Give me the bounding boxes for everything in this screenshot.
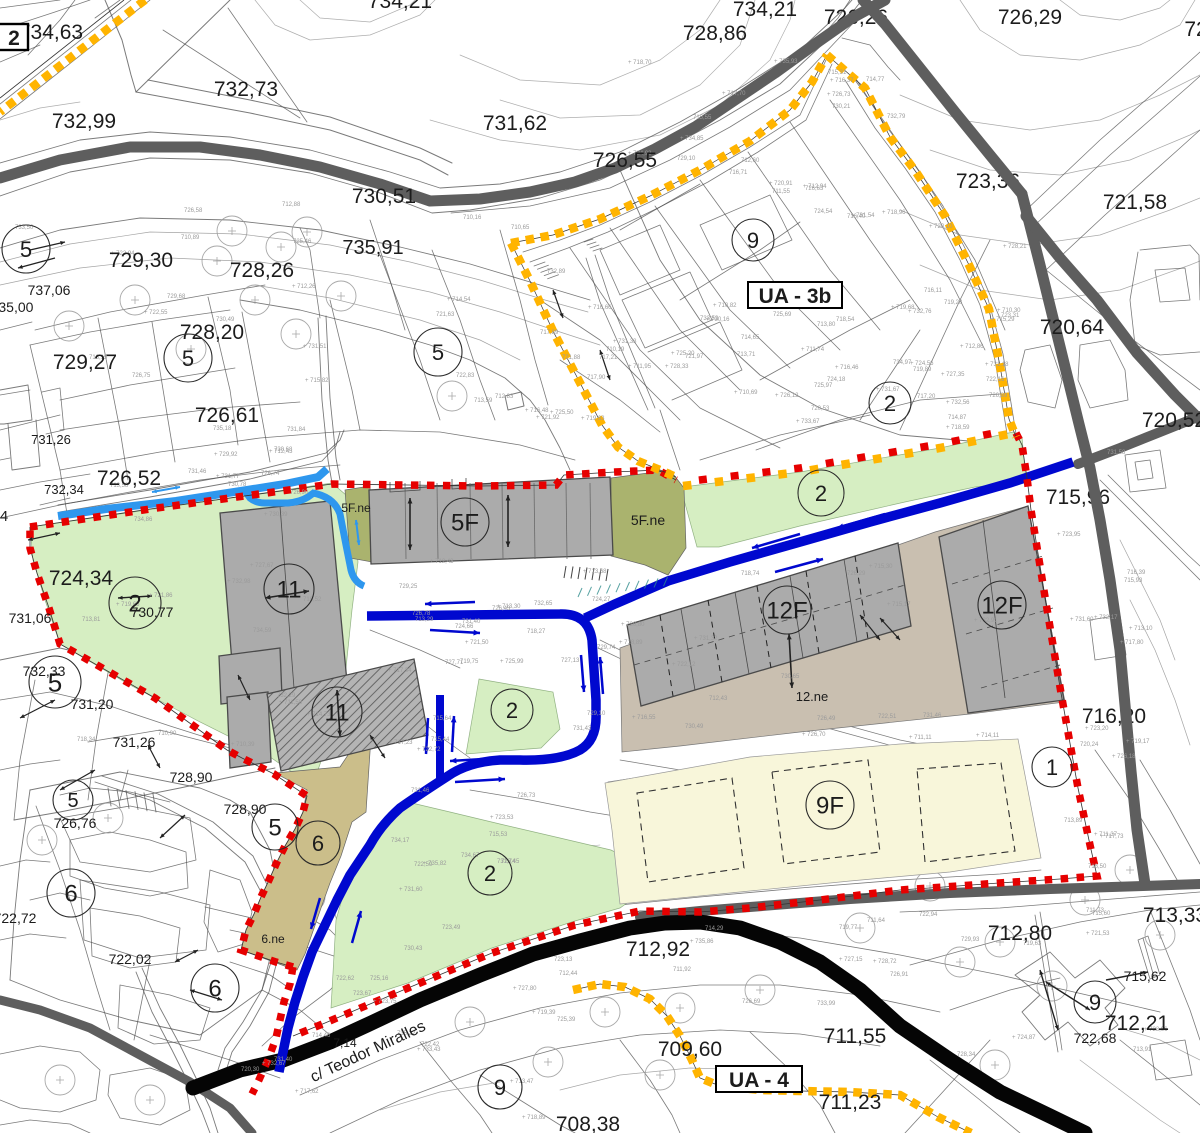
svg-text:712,80: 712,80	[988, 922, 1052, 945]
svg-text:715,31: 715,31	[828, 70, 847, 76]
svg-text:713,29: 713,29	[415, 617, 434, 623]
svg-text:731,62: 731,62	[483, 112, 547, 135]
svg-text:+ 719,39: + 719,39	[532, 1010, 556, 1016]
svg-text:724,34: 724,34	[49, 567, 114, 590]
svg-text:6.ne: 6.ne	[261, 932, 285, 946]
svg-text:710,19: 710,19	[606, 347, 625, 353]
svg-text:723,49: 723,49	[442, 925, 461, 931]
svg-text:722,72: 722,72	[0, 910, 37, 926]
svg-text:724,27: 724,27	[592, 597, 611, 603]
svg-text:710,65: 710,65	[511, 225, 530, 231]
svg-text:733,53: 733,53	[700, 316, 719, 322]
svg-text:6: 6	[64, 881, 77, 908]
svg-text:712,43: 712,43	[709, 696, 728, 702]
svg-text:+ 722,55: + 722,55	[144, 310, 168, 316]
svg-text:734,59: 734,59	[253, 628, 272, 634]
svg-text:710,90: 710,90	[158, 731, 177, 737]
svg-text:5F.ne: 5F.ne	[631, 512, 665, 528]
svg-text:12F: 12F	[981, 593, 1022, 620]
svg-text:+ 735,86: + 735,86	[690, 939, 714, 945]
svg-text:726,89: 726,89	[989, 393, 1008, 399]
svg-text:+ 717,23: + 717,23	[389, 740, 413, 746]
svg-text:+ 711,95: + 711,95	[628, 364, 652, 370]
svg-text:+ 718,89: + 718,89	[522, 1115, 546, 1121]
svg-text:715,44: 715,44	[431, 737, 450, 743]
svg-text:712,88: 712,88	[282, 202, 301, 208]
svg-text:725,69: 725,69	[773, 312, 792, 318]
svg-text:730,65: 730,65	[781, 674, 800, 680]
svg-text:9: 9	[1089, 990, 1101, 1015]
svg-text:+ 728,21: + 728,21	[1003, 244, 1027, 250]
svg-text:730,78: 730,78	[228, 482, 247, 488]
svg-text:+ 718,70: + 718,70	[628, 60, 652, 66]
svg-text:+ 725,50: + 725,50	[550, 410, 574, 416]
svg-text:UA - 3b: UA - 3b	[759, 285, 832, 308]
svg-text:+ 730,39: + 730,39	[264, 512, 288, 518]
svg-text:9: 9	[747, 228, 759, 253]
svg-text:+ 722,12: + 722,12	[672, 662, 696, 668]
svg-text:713,59: 713,59	[474, 398, 493, 404]
svg-text:+ 720,91: + 720,91	[769, 181, 793, 187]
svg-text:726,69: 726,69	[742, 999, 761, 1005]
svg-text:+ 731,77: + 731,77	[216, 474, 240, 480]
svg-text:+ 718,96: + 718,96	[882, 210, 906, 216]
svg-text:719,28: 719,28	[944, 300, 963, 306]
svg-text:715,55: 715,55	[693, 115, 712, 121]
svg-text:724,66: 724,66	[455, 624, 474, 630]
svg-text:716,11: 716,11	[924, 288, 943, 294]
svg-text:UA - 4: UA - 4	[729, 1069, 789, 1092]
svg-text:715,62: 715,62	[1124, 968, 1167, 984]
svg-text:715,60: 715,60	[1092, 911, 1111, 917]
svg-text:+ 726,73: + 726,73	[827, 92, 851, 98]
svg-text:2: 2	[128, 591, 141, 618]
svg-text:731,06: 731,06	[9, 610, 52, 626]
svg-text:725,16: 725,16	[370, 976, 389, 982]
svg-text:717,90: 717,90	[587, 375, 606, 381]
svg-text:728,26: 728,26	[230, 259, 294, 282]
svg-text:9: 9	[494, 1075, 506, 1100]
svg-text:+ 723,20: + 723,20	[1085, 726, 1109, 732]
svg-text:727,13: 727,13	[561, 658, 580, 664]
svg-text:+ 719,68: + 719,68	[891, 305, 915, 311]
svg-text:12.ne: 12.ne	[796, 689, 829, 704]
svg-text:+ 718,59: + 718,59	[946, 425, 970, 431]
svg-text:+ 731,18: + 731,18	[985, 362, 1009, 368]
svg-text:734,97: 734,97	[893, 360, 912, 366]
svg-text:732,89: 732,89	[547, 269, 566, 275]
svg-text:731,74: 731,74	[497, 859, 516, 865]
svg-text:+ 710,30: + 710,30	[997, 308, 1021, 314]
svg-text:+ 724,87: + 724,87	[1012, 1035, 1036, 1041]
svg-text:729,25: 729,25	[399, 584, 418, 590]
svg-text:730,43: 730,43	[404, 946, 423, 952]
svg-text:710,16: 710,16	[463, 215, 482, 221]
svg-text:+ 710,69: + 710,69	[734, 390, 758, 396]
svg-text:+ 732,56: + 732,56	[946, 400, 970, 406]
svg-text:722,62: 722,62	[336, 976, 355, 982]
svg-text:719,75: 719,75	[460, 659, 479, 665]
svg-text:+ 721,50: + 721,50	[465, 640, 489, 646]
svg-text:726,63: 726,63	[805, 186, 824, 192]
svg-text:731,26: 731,26	[31, 432, 71, 447]
svg-text:728,34: 728,34	[957, 1052, 976, 1058]
svg-text:11: 11	[277, 577, 302, 604]
svg-text:732,34: 732,34	[44, 482, 84, 497]
svg-text:724,54: 724,54	[814, 209, 833, 215]
svg-text:+ 716,55: + 716,55	[632, 715, 656, 721]
svg-text:+ 726,12: + 726,12	[775, 393, 799, 399]
svg-text:6: 6	[312, 831, 324, 856]
svg-text:734,21: 734,21	[733, 0, 797, 21]
svg-text:735,91: 735,91	[342, 237, 403, 259]
svg-text:+ 710,39: + 710,39	[231, 742, 255, 748]
svg-text:+ 711,58: + 711,58	[279, 700, 303, 706]
svg-text:725,97: 725,97	[814, 383, 833, 389]
svg-text:708,38: 708,38	[556, 1113, 620, 1133]
svg-text:715,64: 715,64	[433, 716, 452, 722]
svg-text:718,27: 718,27	[527, 629, 546, 635]
svg-text:+ 723,75: + 723,75	[373, 999, 397, 1005]
svg-text:732,65: 732,65	[534, 601, 553, 607]
svg-text:+ 711,11: + 711,11	[909, 735, 932, 741]
svg-text:721,58: 721,58	[1103, 191, 1167, 214]
svg-text:731,20: 731,20	[71, 696, 114, 712]
svg-text:+ 712,86: + 712,86	[960, 344, 984, 350]
svg-text:722,42: 722,42	[421, 1042, 440, 1048]
svg-text:1: 1	[1046, 755, 1058, 780]
svg-text:712,44: 712,44	[559, 971, 578, 977]
svg-text:715,53: 715,53	[489, 832, 508, 838]
svg-text:713,91: 713,91	[1133, 1047, 1152, 1053]
svg-text:715,93: 715,93	[1124, 578, 1143, 584]
svg-text:728,86: 728,86	[683, 22, 747, 45]
svg-text:721,97: 721,97	[685, 354, 704, 360]
svg-text:+ 734,85: + 734,85	[680, 136, 704, 142]
svg-text:4: 4	[0, 508, 8, 525]
svg-text:718,54: 718,54	[836, 317, 855, 323]
svg-text:+ 731,33: + 731,33	[613, 339, 637, 345]
svg-text:716,20: 716,20	[1082, 705, 1146, 728]
svg-text:730,51: 730,51	[352, 185, 416, 208]
svg-text:731,84: 731,84	[287, 427, 306, 433]
svg-text:+ 714,11: + 714,11	[976, 733, 1000, 739]
svg-text:726,90: 726,90	[290, 490, 309, 496]
svg-text:+ 712,43: + 712,43	[430, 559, 454, 565]
svg-text:722,02: 722,02	[109, 951, 152, 967]
svg-text:726,61: 726,61	[195, 404, 259, 427]
svg-text:+ 727,80: + 727,80	[513, 986, 537, 992]
svg-text:723,13: 723,13	[554, 957, 573, 963]
svg-text:2: 2	[815, 481, 827, 506]
svg-text:6: 6	[208, 976, 221, 1003]
svg-text:728,90: 728,90	[170, 769, 213, 785]
svg-text:731,46: 731,46	[188, 469, 207, 475]
svg-text:5F: 5F	[451, 510, 479, 537]
svg-text:716,71: 716,71	[729, 170, 748, 176]
svg-text:731,46: 731,46	[923, 713, 942, 719]
svg-text:730,49: 730,49	[685, 724, 704, 730]
svg-text:+ 713,30: + 713,30	[497, 604, 521, 610]
svg-text:729,74: 729,74	[597, 645, 616, 651]
svg-text:723,67: 723,67	[353, 991, 372, 997]
svg-text:+ 716,37: + 716,37	[830, 78, 854, 84]
svg-text:732,99: 732,99	[52, 110, 116, 133]
svg-text:2: 2	[506, 698, 518, 723]
svg-text:+ 717,80: + 717,80	[1120, 640, 1144, 646]
svg-text:729,10: 729,10	[677, 156, 696, 162]
svg-text:+ 716,46: + 716,46	[835, 365, 859, 371]
svg-text:5: 5	[48, 667, 62, 697]
svg-text:718,74: 718,74	[741, 571, 760, 577]
svg-text:2: 2	[884, 391, 896, 416]
svg-text:713,89: 713,89	[1064, 818, 1083, 824]
svg-text:7,14: 7,14	[333, 1036, 357, 1050]
svg-text:718,34: 718,34	[77, 737, 96, 743]
svg-text:+ 710,82: + 710,82	[713, 303, 737, 309]
svg-text:+ 722,72: + 722,72	[417, 747, 441, 753]
svg-text:+ 731,32: + 731,32	[694, 636, 718, 642]
svg-text:+ 720,80: + 720,80	[621, 622, 645, 628]
svg-text:714,65: 714,65	[741, 335, 760, 341]
svg-text:718,50: 718,50	[1088, 864, 1107, 870]
svg-text:+ 731,54: + 731,54	[851, 213, 875, 219]
svg-text:721,63: 721,63	[436, 312, 455, 318]
svg-text:729,10: 729,10	[587, 711, 606, 717]
svg-text:+ 727,67: + 727,67	[250, 563, 274, 569]
svg-text:728,20: 728,20	[180, 321, 244, 344]
svg-text:711,23: 711,23	[819, 1091, 882, 1114]
svg-text:726,52: 726,52	[97, 467, 161, 490]
svg-text:719,89: 719,89	[913, 367, 932, 373]
svg-text:722,83: 722,83	[456, 373, 475, 379]
svg-text:+ 735,93: + 735,93	[774, 59, 798, 65]
svg-text:5: 5	[182, 346, 194, 371]
svg-text:717,89: 717,89	[540, 330, 559, 336]
svg-text:72: 72	[1184, 18, 1200, 41]
svg-text:734,67: 734,67	[461, 853, 480, 859]
svg-text:724,18: 724,18	[827, 377, 846, 383]
svg-text:721,88: 721,88	[562, 355, 581, 361]
svg-text:716,39: 716,39	[1127, 570, 1146, 576]
svg-text:+ 719,17: + 719,17	[1126, 739, 1150, 745]
svg-text:+ 716,66: + 716,66	[588, 305, 612, 311]
svg-text:717,21: 717,21	[599, 355, 618, 361]
svg-text:+ 721,53: + 721,53	[1086, 931, 1110, 937]
svg-text:729,68: 729,68	[167, 294, 186, 300]
svg-text:734,21: 734,21	[368, 0, 432, 13]
svg-text:12F: 12F	[766, 598, 807, 625]
svg-text:734,17: 734,17	[391, 838, 410, 844]
svg-text:+ 720,10: + 720,10	[929, 224, 953, 230]
svg-text:5: 5	[20, 237, 32, 262]
svg-text:732,29: 732,29	[277, 693, 296, 699]
svg-text:730,21: 730,21	[832, 104, 851, 110]
svg-text:+ 713,68: + 713,68	[583, 569, 607, 575]
svg-text:720,30: 720,30	[241, 1067, 260, 1073]
svg-text:2: 2	[484, 861, 496, 886]
svg-text:737,06: 737,06	[28, 282, 71, 298]
svg-text:712,83: 712,83	[495, 394, 514, 400]
svg-text:729,93: 729,93	[961, 937, 980, 943]
svg-text:+ 728,72: + 728,72	[873, 959, 897, 965]
svg-text:722,16: 722,16	[986, 377, 1005, 383]
svg-text:+ 713,10: + 713,10	[1129, 626, 1153, 632]
svg-text:729,30: 729,30	[109, 249, 173, 272]
svg-text:710,89: 710,89	[181, 235, 200, 241]
svg-text:731,43: 731,43	[573, 726, 592, 732]
svg-text:+ 726,70: + 726,70	[802, 732, 826, 738]
svg-text:731,46: 731,46	[411, 788, 430, 794]
svg-text:+ 726,18: + 726,18	[1112, 754, 1136, 760]
svg-text:5: 5	[432, 340, 444, 365]
svg-text:2: 2	[8, 27, 20, 50]
svg-text:729,27: 729,27	[53, 351, 117, 374]
svg-text:726,76: 726,76	[54, 815, 97, 831]
svg-text:711,55: 711,55	[824, 1025, 887, 1048]
svg-text:726,49: 726,49	[817, 716, 836, 722]
svg-text:+ 717,34: + 717,34	[388, 668, 412, 674]
svg-text:726,29: 726,29	[847, 571, 866, 577]
svg-text:731,58: 731,58	[1107, 450, 1126, 456]
svg-text:713,80: 713,80	[817, 322, 836, 328]
svg-text:714,77: 714,77	[866, 77, 885, 83]
svg-text:720,53: 720,53	[811, 406, 830, 412]
svg-text:731,40: 731,40	[274, 1057, 293, 1063]
svg-text:726,74: 726,74	[261, 471, 280, 477]
svg-text:712,92: 712,92	[626, 938, 690, 961]
svg-text:733,99: 733,99	[817, 1001, 836, 1007]
svg-text:713,81: 713,81	[82, 617, 101, 623]
svg-text:722,94: 722,94	[919, 912, 938, 918]
svg-text:+ 727,15: + 727,15	[839, 957, 863, 963]
svg-text:+ 728,33: + 728,33	[665, 364, 689, 370]
svg-text:726,91: 726,91	[890, 972, 909, 978]
svg-text:722,51: 722,51	[878, 714, 897, 720]
svg-text:714,46: 714,46	[312, 1033, 331, 1039]
svg-text:735,00: 735,00	[0, 299, 34, 315]
svg-text:+ 715,82: + 715,82	[305, 378, 329, 384]
svg-text:+ 711,37: + 711,37	[1094, 832, 1118, 838]
svg-text:+ 711,74: + 711,74	[801, 347, 825, 353]
svg-text:+ 732,98: + 732,98	[227, 579, 251, 585]
svg-text:714,29: 714,29	[705, 926, 724, 932]
svg-text:+ 725,99: + 725,99	[500, 659, 524, 665]
svg-text:+ 716,48: + 716,48	[525, 408, 549, 414]
svg-text:+ 715,30: + 715,30	[869, 564, 893, 570]
svg-text:712,60: 712,60	[741, 158, 760, 164]
svg-text:+ 717,70: + 717,70	[722, 91, 746, 97]
svg-text:725,39: 725,39	[557, 1017, 576, 1023]
svg-text:+ 714,54: + 714,54	[447, 297, 471, 303]
svg-text:711,55: 711,55	[772, 189, 791, 195]
svg-text:11: 11	[325, 700, 350, 727]
svg-text:+ 723,53: + 723,53	[490, 815, 514, 821]
svg-text:726,75: 726,75	[132, 373, 151, 379]
svg-text:711,64: 711,64	[867, 918, 886, 924]
svg-text:5: 5	[268, 815, 281, 842]
svg-text:730,68: 730,68	[274, 447, 293, 453]
svg-text:711,92: 711,92	[673, 967, 692, 973]
svg-text:+ 718,89: + 718,89	[619, 640, 643, 646]
svg-text:+ 731,60: + 731,60	[399, 887, 423, 893]
svg-text:+ 732,17: + 732,17	[1094, 615, 1118, 621]
svg-text:9F: 9F	[816, 793, 844, 820]
svg-text:+ 717,62: + 717,62	[295, 1089, 319, 1095]
svg-text:726,73: 726,73	[517, 793, 536, 799]
svg-text:+ 735,82: + 735,82	[423, 861, 447, 867]
svg-text:709,60: 709,60	[658, 1038, 722, 1061]
svg-text:714,87: 714,87	[948, 415, 967, 421]
svg-text:+ 723,95: + 723,95	[1057, 532, 1081, 538]
svg-text:713,33: 713,33	[1143, 904, 1200, 927]
svg-text:734,86: 734,86	[134, 517, 153, 523]
svg-text:732,79: 732,79	[887, 114, 906, 120]
svg-text:722,68: 722,68	[1074, 1030, 1117, 1046]
svg-text:731,26: 731,26	[113, 734, 156, 750]
svg-text:+ 731,60: + 731,60	[1070, 617, 1094, 623]
svg-text:+ 731,51: + 731,51	[303, 344, 327, 350]
svg-text:+ 715,17: + 715,17	[887, 602, 911, 608]
svg-text:720,52: 720,52	[1142, 409, 1200, 432]
svg-text:732,73: 732,73	[214, 78, 278, 101]
svg-text:717,20: 717,20	[917, 394, 936, 400]
svg-text:720,64: 720,64	[1040, 316, 1105, 339]
svg-text:713,71: 713,71	[737, 352, 756, 358]
svg-text:5F.ne: 5F.ne	[341, 501, 371, 515]
svg-text:725,46: 725,46	[293, 239, 312, 245]
svg-text:+ 733,67: + 733,67	[796, 419, 820, 425]
svg-text:719,77: 719,77	[839, 925, 858, 931]
svg-text:+ 712,26: + 712,26	[292, 284, 316, 290]
svg-text:726,55: 726,55	[593, 149, 657, 172]
svg-text:720,24: 720,24	[1080, 742, 1099, 748]
svg-text:+ 729,92: + 729,92	[214, 452, 238, 458]
svg-text:726,58: 726,58	[184, 208, 203, 214]
svg-text:5: 5	[67, 790, 78, 812]
svg-text:+ 715,29: + 715,29	[991, 317, 1015, 323]
svg-text:+ 727,35: + 727,35	[941, 372, 965, 378]
svg-text:726,29: 726,29	[998, 6, 1062, 29]
svg-text:+ 719,63: + 719,63	[581, 416, 605, 422]
